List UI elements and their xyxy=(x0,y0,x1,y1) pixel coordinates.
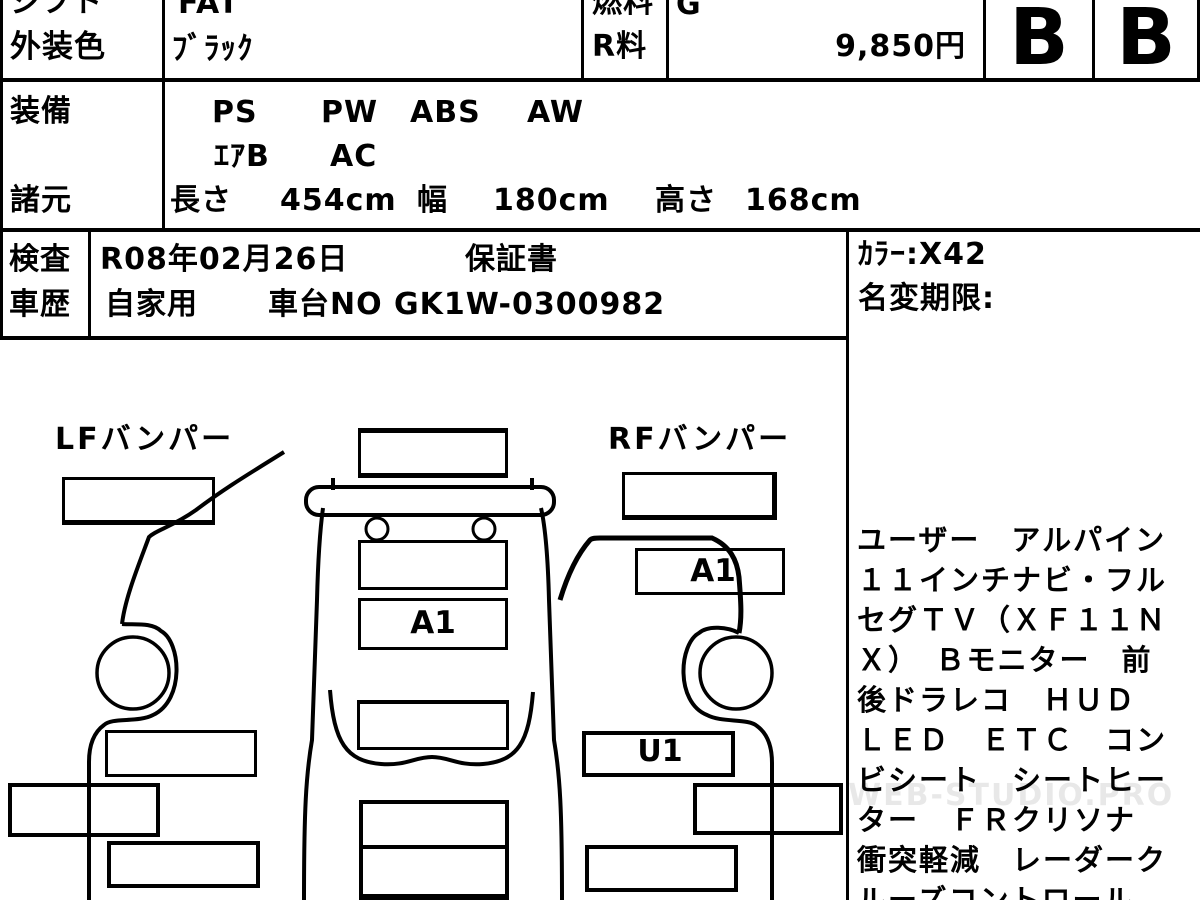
exterior-color-label: 外装色 xyxy=(10,30,106,66)
center-hood-mark: A1 xyxy=(383,605,483,641)
shift-label: シフト xyxy=(10,0,103,21)
note-line: ユーザー アルパイン xyxy=(857,517,1200,557)
center-hook-left xyxy=(366,518,388,540)
note-line: 後ドラレコ ＨＵＤ xyxy=(857,677,1200,717)
lf-box-2 xyxy=(8,783,160,837)
center-body-left-edge xyxy=(304,508,323,900)
history-chassis: 車台NO GK1W-0300982 xyxy=(268,288,665,323)
specs-height-label: 高さ xyxy=(655,184,717,219)
rf-door-mark: U1 xyxy=(610,734,710,769)
inspect-label: 検査 xyxy=(9,243,71,278)
lf-box-1 xyxy=(105,730,257,777)
lf-wheel xyxy=(97,637,169,709)
rfee-value: 9,850円 xyxy=(668,30,966,65)
vline-label-col xyxy=(162,0,165,230)
rf-wheel xyxy=(700,637,772,709)
color-code: ｶﾗｰ:X42 xyxy=(858,238,987,273)
equip-ac: AC xyxy=(330,140,377,175)
lf-bumper-label: LFバンパー xyxy=(55,423,234,458)
equip-pw: PW xyxy=(321,96,378,131)
center-hook-right xyxy=(473,518,495,540)
specs-length: 454cm xyxy=(280,184,397,219)
lf-comment-box xyxy=(62,477,215,525)
specs-label: 諸元 xyxy=(10,184,72,219)
shift-value: FAT xyxy=(178,0,239,22)
note-line: 衝突軽減 レーダーク xyxy=(857,837,1200,877)
note-line: ＬＥＤ ＥＴＣ コン xyxy=(857,717,1200,757)
exterior-color-value: ﾌﾞﾗｯｸ xyxy=(172,32,254,68)
center-windshield-box xyxy=(357,700,509,750)
center-bottom-box-divider xyxy=(362,845,506,849)
vline-fuel-left xyxy=(581,0,584,80)
rf-fender-mark: A1 xyxy=(663,553,763,589)
inspect-warranty: 保証書 xyxy=(465,243,558,278)
hline-history-bottom xyxy=(0,336,849,340)
note-line: ビシート シートヒー xyxy=(857,757,1200,797)
equip-aw: AW xyxy=(527,96,584,131)
vline-inspect-label xyxy=(88,232,91,338)
equip-label: 装備 xyxy=(10,95,72,130)
border-left xyxy=(0,0,3,339)
center-upper-box xyxy=(358,540,508,590)
specs-width: 180cm xyxy=(493,184,610,219)
fuel-label: 燃料 xyxy=(592,0,654,21)
center-cab-lines xyxy=(333,478,532,490)
equip-abs: ABS xyxy=(410,96,481,131)
history-usage: 自家用 xyxy=(105,288,198,323)
specs-height: 168cm xyxy=(745,184,862,219)
note-line: ルーズコントロール xyxy=(857,877,1200,900)
hline-specs-bottom xyxy=(0,228,1200,232)
history-label: 車歴 xyxy=(9,288,71,323)
rf-box-3 xyxy=(585,845,738,892)
equip-airbag: ｴｱB xyxy=(214,140,270,175)
notes-column: ユーザー アルパイン １１インチナビ・フル セグＴＶ（ＸＦ１１Ｎ Ｘ） Ｂモニタ… xyxy=(857,517,1200,900)
auction-sheet: シフト FAT 燃料 G 外装色 ﾌﾞﾗｯｸ R料 9,850円 B B 装備 … xyxy=(0,0,1200,900)
rfee-label: R料 xyxy=(592,30,647,65)
inspect-date: R08年02月26日 xyxy=(100,243,348,278)
center-roof-box xyxy=(358,428,508,478)
center-bottom-box xyxy=(359,800,509,900)
note-line: Ｘ） Ｂモニター 前 xyxy=(857,637,1200,677)
rf-box-2 xyxy=(693,783,843,835)
lf-box-3 xyxy=(107,841,260,888)
name-change-label: 名変期限: xyxy=(858,282,995,317)
note-line: ター ＦＲクリソナ xyxy=(857,797,1200,837)
center-body-right-edge xyxy=(541,508,562,900)
grade-exterior: B xyxy=(986,0,1092,80)
rf-bumper-label: RFバンパー xyxy=(608,423,791,458)
grade-interior: B xyxy=(1095,0,1197,80)
fuel-value: G xyxy=(676,0,702,23)
rf-comment-box xyxy=(622,472,777,520)
specs-length-label: 長さ xyxy=(170,184,232,219)
note-line: １１インチナビ・フル xyxy=(857,557,1200,597)
equip-ps: PS xyxy=(212,96,258,131)
center-bumper-bar xyxy=(306,487,554,515)
specs-width-label: 幅 xyxy=(417,184,448,219)
note-line: セグＴＶ（ＸＦ１１Ｎ xyxy=(857,597,1200,637)
